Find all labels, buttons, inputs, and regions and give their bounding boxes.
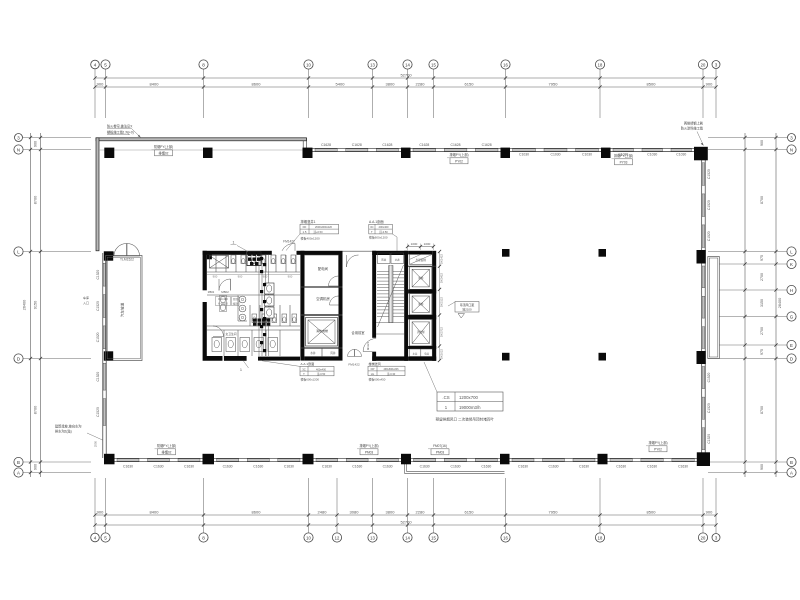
svg-text:楼梯送风: 楼梯送风: [369, 361, 381, 366]
svg-text:吊顶: 吊顶: [233, 297, 239, 301]
svg-text:B: B: [790, 460, 793, 465]
svg-text:900: 900: [706, 81, 713, 86]
svg-text:C1628: C1628: [419, 143, 429, 147]
svg-text:FM07(16): FM07(16): [433, 444, 447, 448]
svg-text:1000: 1000: [424, 242, 431, 246]
svg-text:16: 16: [503, 62, 508, 67]
svg-text:C1520: C1520: [96, 301, 100, 311]
svg-text:C1630: C1630: [579, 464, 589, 468]
svg-text:3150: 3150: [760, 299, 764, 307]
svg-text:N: N: [790, 147, 793, 152]
svg-text:C1030: C1030: [676, 153, 686, 157]
svg-text:900: 900: [706, 509, 713, 514]
svg-text:D: D: [17, 356, 20, 361]
svg-text:8600: 8600: [252, 509, 262, 514]
svg-text:52700: 52700: [400, 72, 412, 77]
svg-text:电井: 电井: [424, 351, 429, 355]
svg-text:5: 5: [104, 62, 107, 67]
svg-text:8: 8: [202, 535, 205, 540]
svg-text:M1121: M1121: [366, 341, 370, 350]
svg-text:C1630: C1630: [322, 464, 332, 468]
svg-text:C1628: C1628: [482, 143, 492, 147]
svg-text:K-0.400: K-0.400: [218, 297, 228, 301]
svg-text:客梯: 客梯: [418, 276, 424, 280]
svg-text:1200x700: 1200x700: [459, 395, 478, 400]
svg-text:1: 1: [240, 368, 242, 372]
svg-text:DK3722: DK3722: [440, 327, 444, 338]
svg-text:合用前室: 合用前室: [351, 330, 365, 335]
svg-text:车库: 车库: [83, 295, 89, 300]
svg-text:52700: 52700: [400, 520, 412, 525]
svg-text:900: 900: [213, 275, 218, 279]
svg-text:10: 10: [306, 535, 311, 540]
svg-text:PM03: PM03: [365, 450, 374, 454]
svg-text:DK3422: DK3422: [440, 273, 444, 284]
svg-text:C1628: C1628: [352, 143, 362, 147]
svg-text:16: 16: [503, 535, 508, 540]
svg-text:DF: DF: [303, 225, 307, 229]
svg-text:K: K: [790, 262, 793, 267]
svg-text:C1520: C1520: [707, 169, 711, 179]
svg-text:吸顶: 吸顶: [233, 302, 239, 306]
svg-text:K-0.020: K-0.020: [218, 302, 228, 306]
svg-text:PM03: PM03: [436, 450, 445, 454]
svg-text:顶-0.50: 顶-0.50: [317, 372, 326, 376]
svg-text:26400: 26400: [23, 300, 27, 311]
svg-text:3800: 3800: [386, 509, 396, 514]
svg-text:C1030: C1030: [519, 153, 529, 157]
svg-text:H: H: [790, 288, 793, 293]
svg-text:A: A: [17, 470, 20, 475]
svg-text:900: 900: [34, 464, 38, 470]
svg-text:女卫生间: 女卫生间: [225, 332, 236, 336]
svg-text:C1520: C1520: [96, 270, 100, 280]
svg-text:8400: 8400: [150, 509, 160, 514]
svg-text:吊顶风口距: 吊顶风口距: [460, 303, 475, 307]
svg-text:C1630: C1630: [549, 464, 559, 468]
svg-text:18: 18: [598, 535, 603, 540]
svg-text:26400: 26400: [778, 298, 782, 309]
svg-text:3800: 3800: [386, 81, 396, 86]
svg-text:A.A.1剖面: A.A.1剖面: [301, 361, 315, 366]
svg-text:6150: 6150: [465, 509, 475, 514]
svg-text:FM1422: FM1422: [348, 363, 360, 367]
svg-text:8700: 8700: [34, 406, 38, 414]
svg-text:C1630: C1630: [253, 464, 263, 468]
svg-text:防火涂料施工缝: 防火涂料施工缝: [681, 126, 704, 131]
svg-text:C1630: C1630: [352, 464, 362, 468]
svg-text:2480: 2480: [318, 509, 328, 514]
svg-text:1.5: 1.5: [303, 230, 307, 234]
svg-text:汽车坡道: 汽车坡道: [120, 302, 125, 317]
svg-text:5: 5: [104, 535, 107, 540]
svg-text:3C: 3C: [302, 367, 305, 371]
svg-text:9150: 9150: [34, 301, 38, 309]
svg-text:HL: HL: [371, 372, 375, 376]
svg-text:15: 15: [431, 535, 436, 540]
svg-text:C1030: C1030: [647, 153, 657, 157]
svg-text:C1630: C1630: [154, 464, 164, 468]
svg-text:15: 15: [431, 62, 436, 67]
svg-text:C1520: C1520: [96, 407, 100, 417]
svg-text:楼板600x1200: 楼板600x1200: [301, 377, 320, 382]
svg-text:12: 12: [335, 535, 340, 540]
svg-text:3: 3: [715, 535, 718, 540]
svg-text:14: 14: [405, 62, 410, 67]
svg-text:D: D: [790, 356, 793, 361]
svg-text:楼板600x1200: 楼板600x1200: [369, 235, 388, 240]
svg-text:900: 900: [34, 141, 38, 147]
svg-text:3: 3: [715, 62, 718, 67]
svg-text:8600: 8600: [252, 81, 262, 86]
svg-text:900: 900: [288, 275, 293, 279]
svg-text:C1520: C1520: [707, 231, 711, 241]
svg-text:水井: 水井: [395, 258, 401, 262]
svg-text:PY02: PY02: [455, 159, 463, 163]
svg-text:入口: 入口: [83, 301, 89, 305]
svg-text:预留排烟风口 二次装修吊顶封堵百叶: 预留排烟风口 二次装修吊顶封堵百叶: [436, 417, 495, 422]
svg-text:900: 900: [97, 509, 104, 514]
svg-text:C1030: C1030: [582, 153, 592, 157]
svg-text:DP: DP: [371, 367, 375, 371]
svg-text:900: 900: [760, 464, 764, 470]
svg-text:20: 20: [701, 62, 706, 67]
svg-text:N: N: [17, 147, 20, 152]
svg-text:B: B: [17, 460, 20, 465]
svg-text:C1628: C1628: [451, 143, 461, 147]
svg-text:C1630: C1630: [518, 464, 528, 468]
svg-text:.CS: .CS: [442, 395, 449, 400]
svg-text:风井: 风井: [381, 258, 387, 262]
svg-text:DK1422: DK1422: [440, 254, 444, 265]
svg-text:8700: 8700: [760, 196, 764, 204]
svg-text:C1630: C1630: [451, 464, 461, 468]
svg-text:楼板400x1200: 楼板400x1200: [301, 235, 321, 240]
svg-text:C1630: C1630: [383, 464, 393, 468]
svg-text:C1630: C1630: [223, 464, 233, 468]
svg-text:C1630: C1630: [616, 464, 626, 468]
svg-text:C1030: C1030: [551, 153, 561, 157]
svg-text:DK1022: DK1022: [440, 349, 444, 360]
svg-text:空调机房: 空调机房: [316, 296, 330, 301]
svg-text:2550: 2550: [94, 440, 98, 447]
svg-text:排烟PY(上部): 排烟PY(上部): [614, 153, 633, 158]
svg-text:499x696x206: 499x696x206: [383, 368, 399, 371]
svg-text:C1520: C1520: [707, 200, 711, 210]
svg-text:排烟02: 排烟02: [159, 150, 169, 155]
svg-text:DK3122: DK3122: [440, 297, 444, 308]
svg-text:10: 10: [306, 62, 311, 67]
svg-text:7950: 7950: [549, 509, 559, 514]
svg-text:1: 1: [233, 241, 235, 245]
svg-text:C1520: C1520: [707, 434, 711, 444]
svg-text:出屋面梯: 出屋面梯: [416, 258, 427, 262]
svg-text:8500: 8500: [647, 81, 657, 86]
svg-text:建筑找坡,坡向水沟: 建筑找坡,坡向水沟: [55, 424, 81, 429]
svg-text:7950: 7950: [549, 81, 559, 86]
svg-text:楼板施工缝1:N(+0): 楼板施工缝1:N(+0): [107, 130, 134, 135]
svg-text:配电间: 配电间: [318, 266, 329, 271]
svg-text:2700: 2700: [760, 273, 764, 281]
svg-text:C1630: C1630: [420, 464, 430, 468]
svg-text:1000: 1000: [411, 242, 418, 246]
svg-text:A.A.1剖面: A.A.1剖面: [369, 219, 384, 224]
svg-text:18: 18: [598, 62, 603, 67]
svg-text:400x400: 400x400: [316, 367, 327, 371]
svg-text:C1630: C1630: [678, 464, 688, 468]
svg-text:5400: 5400: [336, 81, 346, 86]
svg-text:风井: 风井: [330, 351, 336, 355]
svg-text:C1630: C1630: [184, 464, 194, 468]
svg-text:975: 975: [760, 349, 764, 355]
svg-text:2280: 2280: [416, 81, 426, 86]
svg-text:顶-0.50: 顶-0.50: [379, 230, 388, 234]
svg-text:C1630: C1630: [284, 464, 294, 468]
svg-text:排水沟2(溢): 排水沟2(溢): [55, 429, 72, 434]
svg-text:C1520: C1520: [707, 403, 711, 413]
svg-text:C1628: C1628: [382, 143, 392, 147]
svg-text:400x400: 400x400: [379, 225, 390, 229]
svg-text:客梯: 客梯: [418, 302, 424, 306]
svg-text:8700: 8700: [34, 196, 38, 204]
svg-text:6150: 6150: [465, 81, 475, 86]
svg-text:8700: 8700: [760, 406, 764, 414]
svg-text:E: E: [790, 343, 793, 348]
svg-text:两侧槽钢上刷: 两侧槽钢上刷: [684, 121, 703, 126]
svg-text:排烟PY(上部): 排烟PY(上部): [449, 152, 468, 157]
svg-text:13: 13: [370, 535, 375, 540]
svg-text:TLM1522: TLM1522: [120, 258, 134, 262]
svg-text:900: 900: [97, 81, 104, 86]
svg-text:4: 4: [94, 535, 97, 540]
svg-text:C1520: C1520: [96, 372, 100, 382]
svg-text:水井: 水井: [413, 351, 418, 355]
svg-text:900: 900: [238, 275, 243, 279]
svg-text:G: G: [790, 314, 794, 319]
svg-text:C1630: C1630: [481, 464, 491, 468]
svg-text:M802: M802: [208, 290, 215, 294]
svg-text:4: 4: [94, 62, 97, 67]
svg-text:PY03: PY03: [620, 160, 628, 164]
svg-text:C1630: C1630: [647, 464, 657, 468]
svg-text:防烟PY(上部): 防烟PY(上部): [157, 443, 176, 448]
svg-text:消防梯: 消防梯: [417, 330, 425, 334]
svg-text:975: 975: [760, 255, 764, 261]
svg-text:PY02: PY02: [654, 447, 662, 451]
svg-text:排烟PY(上部): 排烟PY(上部): [648, 440, 667, 445]
svg-text:8400: 8400: [150, 81, 160, 86]
svg-text:8500: 8500: [647, 509, 657, 514]
svg-text:防火卷帘,做法见X: 防火卷帘,做法见X: [107, 124, 133, 129]
svg-text:3080: 3080: [350, 509, 360, 514]
svg-text:3C: 3C: [370, 225, 373, 229]
svg-text:13: 13: [370, 62, 375, 67]
svg-text:排烟竖井1: 排烟竖井1: [301, 219, 316, 224]
svg-text:地2100: 地2100: [462, 307, 472, 312]
svg-text:14: 14: [405, 535, 410, 540]
svg-text:C1630: C1630: [123, 464, 133, 468]
svg-text:C1628: C1628: [321, 143, 331, 147]
svg-text:A: A: [790, 470, 793, 475]
svg-text:8: 8: [202, 62, 205, 67]
svg-text:排烟PY(上部): 排烟PY(上部): [359, 443, 378, 448]
svg-text:水井: 水井: [310, 351, 316, 355]
svg-text:M802: M802: [221, 290, 229, 294]
svg-text:消防电梯: 消防电梯: [316, 328, 328, 333]
svg-text:19000m3/h: 19000m3/h: [459, 405, 481, 410]
svg-text:楼板600x450: 楼板600x450: [369, 377, 386, 382]
svg-text:顶+0.50: 顶+0.50: [313, 230, 323, 234]
svg-text:900: 900: [760, 140, 764, 146]
svg-text:20: 20: [701, 535, 706, 540]
svg-text:防烟PY(上部): 防烟PY(上部): [154, 144, 173, 149]
svg-text:900: 900: [263, 275, 268, 279]
svg-text:排烟02: 排烟02: [162, 449, 172, 454]
svg-text:2280: 2280: [416, 509, 426, 514]
svg-text:C1520: C1520: [707, 373, 711, 383]
svg-text:C1520: C1520: [96, 332, 100, 342]
svg-text:2700: 2700: [760, 327, 764, 335]
svg-text:顶-0.30: 顶-0.30: [387, 372, 396, 376]
svg-text:2600x900x220: 2600x900x220: [315, 225, 333, 229]
